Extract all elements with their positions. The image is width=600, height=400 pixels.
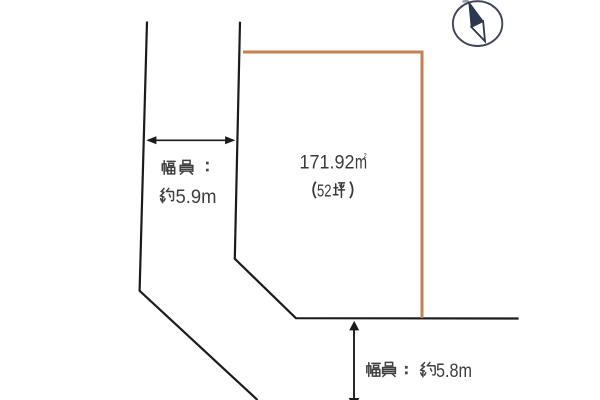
svg-text:5.9m: 5.9m — [176, 186, 217, 208]
svg-text:171.92: 171.92 — [300, 152, 355, 174]
svg-text:5.8m: 5.8m — [436, 360, 472, 382]
svg-text:2: 2 — [364, 153, 367, 160]
svg-text:52: 52 — [317, 181, 332, 201]
